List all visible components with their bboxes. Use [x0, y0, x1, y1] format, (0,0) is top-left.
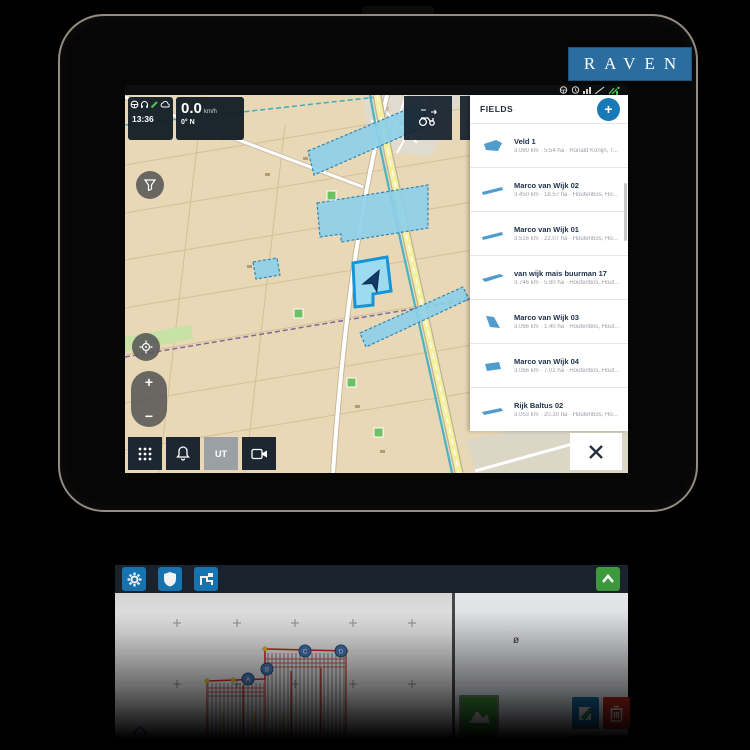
machine-status-panel[interactable]: 13:36 — [128, 97, 173, 140]
field-subtitle: 3.080 km · 5.54 ha · Ronald Konijn, T... — [514, 148, 622, 154]
close-icon — [588, 444, 604, 460]
camera-button[interactable] — [242, 437, 276, 470]
filter-button[interactable] — [136, 171, 164, 199]
close-panel-button[interactable] — [570, 433, 622, 470]
plus-icon: + — [604, 102, 612, 116]
fields-panel-title: FIELDS — [480, 104, 513, 114]
field-subtitle: 3.746 km · 5.80 ha · Houtenbos, Hout... — [514, 280, 622, 286]
steering-wheel-icon — [559, 86, 568, 94]
field-subtitle: 3.066 km · 1.40 ha · Houtenbos, Hout... — [514, 324, 622, 330]
speed-panel[interactable]: 0.0 km/h 0° N — [176, 97, 244, 140]
steering-wheel-icon — [130, 100, 139, 109]
ut-button[interactable]: UT — [204, 437, 238, 470]
tractor-sync-icon — [417, 109, 439, 127]
field-list-item[interactable]: Marco van Wijk 03 3.066 km · 1.40 ha · H… — [470, 299, 628, 343]
zoom-out-button[interactable]: − — [145, 411, 153, 421]
heading-readout: 0° N — [181, 119, 239, 126]
field-title: Marco van Wijk 02 — [514, 181, 622, 190]
recenter-gps-button[interactable] — [132, 333, 160, 361]
device-screen: 13:36 0.0 km/h 0° N + − — [125, 85, 628, 473]
field-shape-icon — [478, 314, 508, 330]
grid-icon — [138, 447, 152, 461]
notifications-button[interactable] — [166, 437, 200, 470]
cloud-icon — [160, 100, 171, 109]
tablet-reflection: A B C D ø — [0, 520, 750, 750]
ut-label: UT — [215, 449, 227, 459]
fields-scrollbar[interactable] — [624, 183, 627, 241]
field-list-item[interactable]: Veld 1 3.080 km · 5.54 ha · Ronald Konij… — [470, 123, 628, 167]
field-list-item[interactable]: Rijk Baltus 02 3.053 km · 20.30 ha · Hou… — [470, 387, 628, 431]
field-title: Marco van Wijk 01 — [514, 225, 622, 234]
field-shape-icon — [478, 358, 508, 374]
field-shape-icon — [478, 270, 508, 286]
field-title: Rijk Baltus 02 — [514, 401, 622, 410]
zoom-in-button[interactable]: + — [145, 377, 153, 387]
field-shape-icon — [478, 182, 508, 198]
field-subtitle: 3.066 km · 7.02 ha · Houtenbos, Hout... — [514, 368, 622, 374]
field-title: Marco van Wijk 03 — [514, 313, 622, 322]
camera-icon — [251, 448, 268, 460]
field-subtitle: 3.450 km · 18.57 ha · Houtenbos, Ho... — [514, 192, 622, 198]
add-field-button[interactable]: + — [597, 98, 620, 121]
headset-icon — [140, 100, 149, 109]
raven-logo-text: RAVEN — [575, 54, 685, 74]
filter-icon — [144, 179, 156, 191]
field-title: van wijk mais buurman 17 — [514, 269, 622, 278]
alert-clock-icon — [571, 86, 580, 94]
crosshair-icon — [139, 340, 153, 354]
fields-panel: FIELDS + Veld 1 3.080 km · 5.54 ha · Ron… — [470, 95, 628, 431]
clock-readout: 13:36 — [130, 114, 171, 124]
zoom-control: + − — [131, 371, 167, 427]
speed-value: 0.0 — [181, 100, 202, 117]
satellite-green-icon — [608, 86, 620, 95]
raven-logo: RAVEN — [568, 47, 692, 81]
speed-unit: km/h — [204, 109, 217, 115]
status-bar — [125, 85, 628, 95]
field-list-item[interactable]: Marco van Wijk 01 3.516 km · 22.07 ha · … — [470, 211, 628, 255]
tablet-frame: RAVEN — [58, 14, 698, 512]
field-list-item[interactable]: Marco van Wijk 04 3.066 km · 7.02 ha · H… — [470, 343, 628, 387]
field-shape-icon — [478, 226, 508, 242]
field-title: Marco van Wijk 04 — [514, 357, 622, 366]
field-shape-icon — [478, 402, 508, 418]
field-shape-icon — [478, 138, 508, 154]
field-subtitle: 3.516 km · 22.07 ha · Houtenbos, Ho... — [514, 236, 622, 242]
field-subtitle: 3.053 km · 20.30 ha · Houtenbos, Ho... — [514, 412, 622, 418]
antenna-icon — [595, 86, 605, 94]
vehicle-view-button[interactable] — [404, 96, 452, 140]
field-list-item[interactable]: van wijk mais buurman 17 3.746 km · 5.80… — [470, 255, 628, 299]
bell-icon — [176, 446, 190, 461]
signal-bars-icon — [583, 86, 592, 94]
pencil-green-icon — [150, 100, 159, 109]
reflection-fade — [0, 520, 750, 750]
field-title: Veld 1 — [514, 137, 622, 146]
apps-grid-button[interactable] — [128, 437, 162, 470]
field-list-item[interactable]: Marco van Wijk 02 3.450 km · 18.57 ha · … — [470, 167, 628, 211]
